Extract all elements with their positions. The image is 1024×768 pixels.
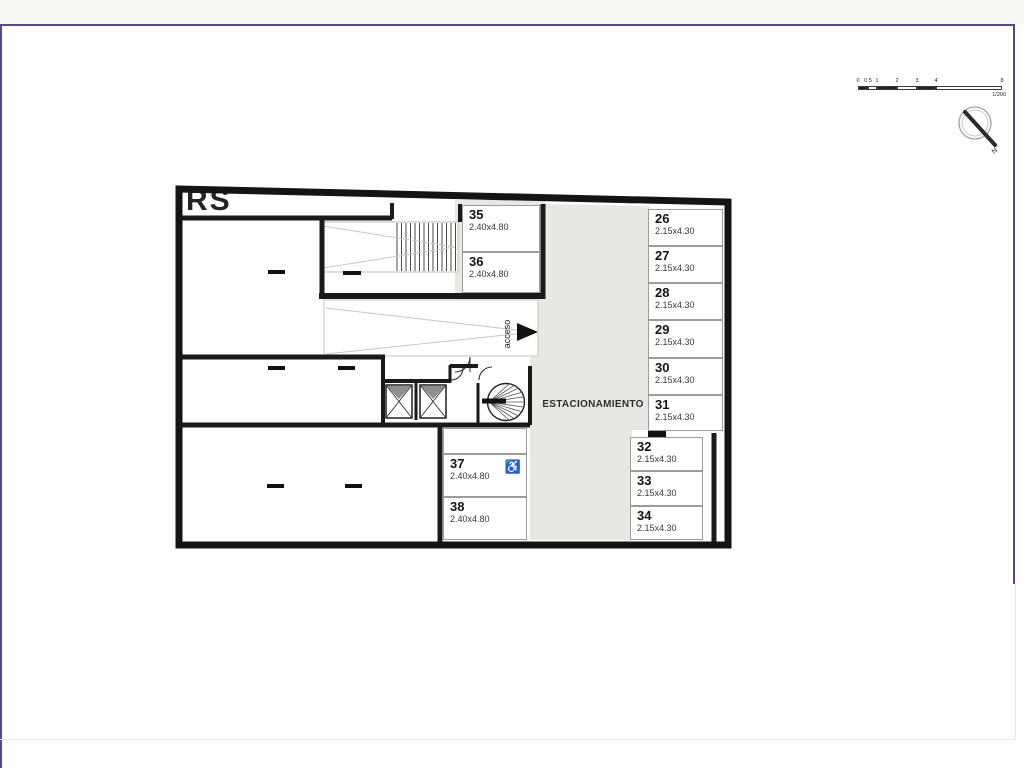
scale-segment bbox=[858, 86, 868, 90]
parking-spot-dimensions: 2.40x4.80 bbox=[469, 222, 539, 233]
parking-spot-dimensions: 2.15x4.30 bbox=[637, 523, 702, 534]
parking-spot: 312.15x4.30 bbox=[648, 395, 723, 431]
parking-spot-dimensions: 2.15x4.30 bbox=[655, 337, 722, 348]
parking-spot-number: 29 bbox=[655, 323, 722, 337]
wheelchair-icon: ♿ bbox=[505, 459, 521, 475]
parking-spot-dimensions: 2.15x4.30 bbox=[637, 488, 702, 499]
floor-plan-drawing bbox=[0, 0, 1024, 768]
parking-spot-dimensions: 2.15x4.30 bbox=[655, 263, 722, 274]
parking-spot: 282.15x4.30 bbox=[648, 283, 723, 320]
parking-spot-number: 30 bbox=[655, 361, 722, 375]
scale-segment bbox=[936, 86, 1002, 90]
scale-tick-label: 8 bbox=[1000, 78, 1003, 84]
parking-spot: 352.40x4.80 bbox=[462, 205, 540, 252]
north-label: N bbox=[991, 147, 999, 156]
scale-tick-label: 0.5 bbox=[864, 78, 872, 84]
scale-tick-label: 2 bbox=[895, 78, 898, 84]
scale-tick-label: 4 bbox=[934, 78, 937, 84]
parking-spot: 342.15x4.30 bbox=[630, 506, 703, 540]
spiral-staircase-icon bbox=[482, 384, 525, 421]
parking-spot-number: 31 bbox=[655, 398, 722, 412]
parking-spot-number: 34 bbox=[637, 509, 702, 523]
parking-spot: 362.40x4.80 bbox=[462, 252, 540, 293]
scale-tick-label: 1 bbox=[875, 78, 878, 84]
scale-segment bbox=[897, 86, 917, 90]
parking-spot-dimensions: 2.40x4.80 bbox=[469, 269, 539, 280]
parking-spot-dimensions: 2.15x4.30 bbox=[655, 300, 722, 311]
parking-spot-number: 28 bbox=[655, 286, 722, 300]
floor-plan-page: RS bbox=[0, 0, 1024, 768]
parking-spot-number: 36 bbox=[469, 255, 539, 269]
parking-spot: 292.15x4.30 bbox=[648, 320, 723, 358]
scale-ratio: 1/200 bbox=[992, 92, 1006, 98]
access-label: acceso bbox=[488, 315, 526, 353]
scale-bar: 00.512348 1/200 bbox=[856, 78, 1008, 102]
parking-spot-dimensions: 2.15x4.30 bbox=[655, 412, 722, 423]
door-arcs bbox=[451, 357, 492, 380]
parking-spot-number: 38 bbox=[450, 500, 526, 514]
parking-spot-number: 35 bbox=[469, 208, 539, 222]
parking-spot-dimensions: 2.15x4.30 bbox=[637, 454, 702, 465]
elevator-icon bbox=[420, 385, 446, 418]
parking-spot-dimensions: 2.15x4.30 bbox=[655, 375, 722, 386]
parking-spot: 272.15x4.30 bbox=[648, 246, 723, 283]
elevator-icon bbox=[386, 385, 412, 418]
parking-spot-number: 32 bbox=[637, 440, 702, 454]
parking-spot: 302.15x4.30 bbox=[648, 358, 723, 395]
parking-spot: 382.40x4.80 bbox=[443, 497, 527, 540]
parking-spot-number: 26 bbox=[655, 212, 722, 226]
parking-spot: 332.15x4.30 bbox=[630, 471, 703, 506]
parking-spot-dimensions: 2.15x4.30 bbox=[655, 226, 722, 237]
scale-segment bbox=[868, 86, 877, 90]
parking-spot: 322.15x4.30 bbox=[630, 437, 703, 471]
parking-spot-number: 33 bbox=[637, 474, 702, 488]
parking-spot-dimensions: 2.40x4.80 bbox=[450, 514, 526, 525]
scale-segment bbox=[877, 86, 897, 90]
north-compass-icon: N bbox=[948, 100, 1010, 162]
parking-spot: 372.40x4.80♿ bbox=[443, 454, 527, 497]
parking-spot: 262.15x4.30 bbox=[648, 209, 723, 246]
scale-segment bbox=[917, 86, 936, 90]
area-label: ESTACIONAMIENTO bbox=[536, 399, 650, 410]
scale-tick-label: 0 bbox=[856, 78, 859, 84]
parking-spot-number: 27 bbox=[655, 249, 722, 263]
scale-tick-label: 3 bbox=[915, 78, 918, 84]
empty-stall-cell bbox=[443, 428, 527, 454]
